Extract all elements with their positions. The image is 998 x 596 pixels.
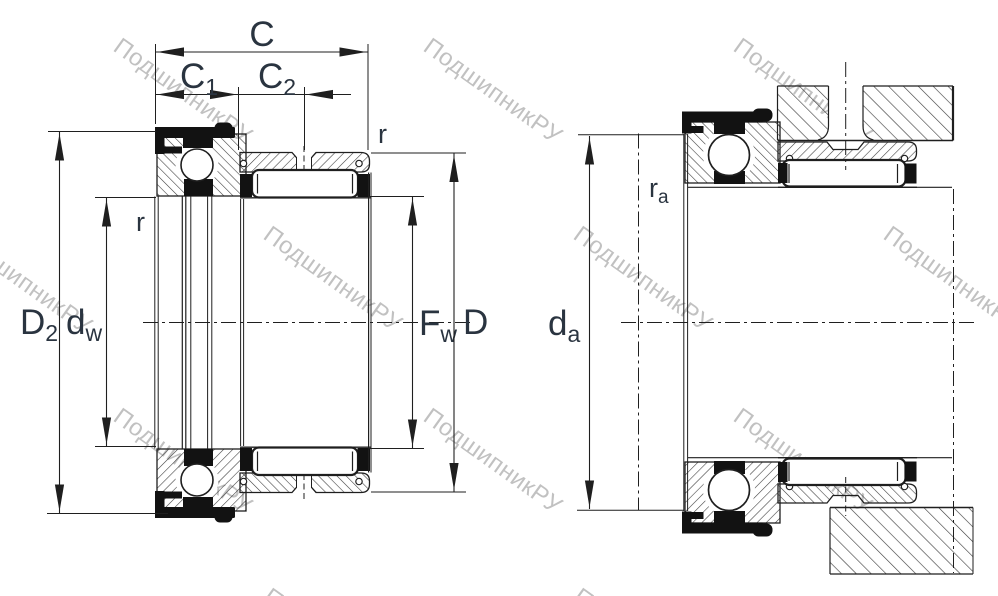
- watermark-text: ПодшипникРУ: [879, 221, 998, 338]
- left-bearing-lower-section: [155, 447, 371, 522]
- watermark-text: ПодшипникРУ: [419, 403, 568, 520]
- left-view-cross-section: C C1 C2 r r D2: [20, 15, 488, 523]
- dim-label-d: D: [463, 303, 488, 342]
- watermark-text: ПодшипникРУ: [259, 583, 408, 596]
- dim-label-dw: dw: [66, 303, 102, 346]
- fillet-radius-label-ra: ra: [649, 173, 669, 208]
- housing-upper-block: [778, 86, 954, 141]
- watermark-text: ПодшипникРУ: [569, 583, 718, 596]
- dim-label-c2: C2: [258, 57, 296, 100]
- bearing-technical-drawing: ПодшипникРУ ПодшипникРУ ПодшипникРУ Подш…: [0, 0, 998, 596]
- housing-lower-block: [830, 508, 973, 575]
- chamfer-radius-label-side: r: [136, 207, 145, 237]
- dim-label-fw: Fw: [419, 304, 457, 347]
- dim-label-c: C: [249, 15, 274, 54]
- watermark-text: ПодшипникРУ: [259, 221, 408, 338]
- chamfer-radius-label-top: r: [378, 119, 387, 149]
- dim-c2: C2: [239, 57, 352, 150]
- dim-label-c1: C1: [180, 57, 218, 100]
- watermark-text: ПодшипникРУ: [419, 33, 568, 150]
- watermark-text: ПодшипникРУ: [569, 221, 718, 338]
- left-bearing-upper-section: [155, 123, 371, 198]
- drawing-canvas: ПодшипникРУ ПодшипникРУ ПодшипникРУ Подш…: [0, 0, 998, 596]
- dim-label-da: da: [548, 304, 580, 347]
- right-view-mounting: da ra: [548, 62, 977, 574]
